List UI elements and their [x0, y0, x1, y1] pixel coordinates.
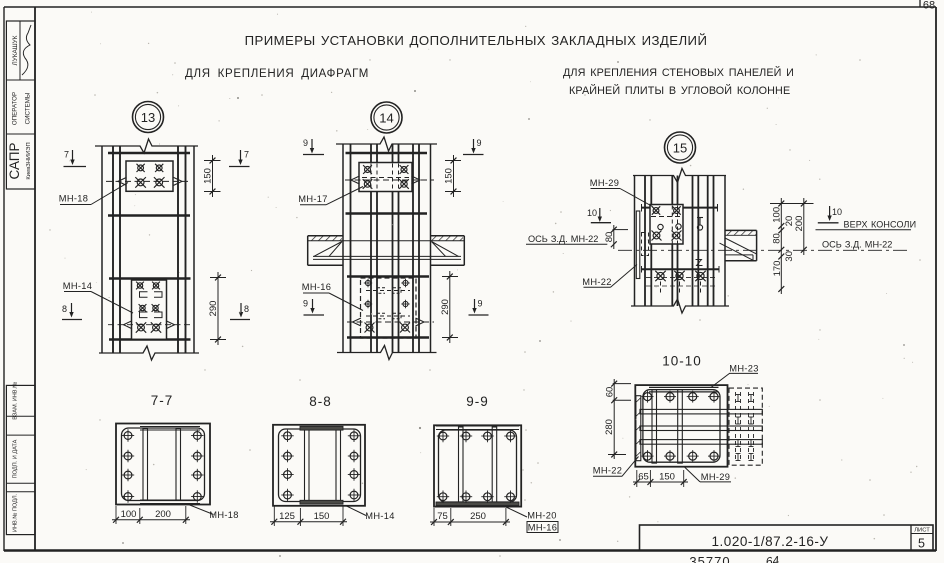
- svg-text:МН-22: МН-22: [582, 277, 611, 287]
- svg-text:290: 290: [208, 301, 219, 317]
- svg-text:200: 200: [794, 216, 805, 232]
- svg-text:ОСЬ З.Д. МН-22: ОСЬ З.Д. МН-22: [528, 234, 598, 244]
- svg-text:ИНВ.№ ПОДЛ.: ИНВ.№ ПОДЛ.: [13, 493, 19, 532]
- svg-text:7-7: 7-7: [151, 393, 174, 408]
- svg-text:КиевЗНИИЭП: КиевЗНИИЭП: [26, 142, 32, 179]
- svg-text:ДЛЯ КРЕПЛЕНИЯ ДИАФРАГМ: ДЛЯ КРЕПЛЕНИЯ ДИАФРАГМ: [185, 68, 369, 80]
- svg-text:МН-22: МН-22: [593, 466, 622, 476]
- svg-text:МН-29: МН-29: [590, 178, 619, 188]
- svg-text:30: 30: [784, 251, 795, 262]
- svg-text:68: 68: [923, 0, 935, 12]
- svg-text:МН-23: МН-23: [729, 363, 758, 373]
- svg-text:80: 80: [604, 232, 615, 243]
- svg-text:35770: 35770: [689, 554, 730, 563]
- svg-text:8: 8: [62, 304, 67, 314]
- svg-text:ПРИМЕРЫ УСТАНОВКИ ДОПОЛНИТЕЛ: ПРИМЕРЫ УСТАНОВКИ ДОПОЛНИТЕЛЬНЫХ ЗАКЛАДН…: [245, 33, 708, 48]
- svg-text:ВЗАМ. ИНВ.№: ВЗАМ. ИНВ.№: [13, 382, 19, 420]
- svg-text:280: 280: [604, 419, 615, 435]
- svg-text:15: 15: [673, 141, 687, 156]
- svg-text:65: 65: [638, 471, 649, 482]
- svg-text:МН-18: МН-18: [209, 510, 238, 520]
- svg-text:МН-14: МН-14: [365, 511, 394, 521]
- svg-text:60: 60: [604, 387, 615, 398]
- svg-text:9: 9: [303, 138, 308, 148]
- svg-text:МН-16: МН-16: [528, 522, 557, 532]
- svg-text:5: 5: [918, 537, 925, 551]
- svg-text:14: 14: [379, 111, 393, 126]
- svg-text:7: 7: [64, 150, 69, 160]
- svg-text:1.020-1/87.2-16-У: 1.020-1/87.2-16-У: [712, 534, 829, 549]
- svg-text:100: 100: [772, 207, 783, 223]
- svg-text:80: 80: [772, 233, 783, 244]
- svg-text:10-10: 10-10: [662, 354, 702, 369]
- svg-text:САПР: САПР: [7, 142, 22, 179]
- svg-text:8: 8: [244, 304, 249, 314]
- svg-text:МН-29: МН-29: [701, 472, 730, 482]
- svg-text:170: 170: [772, 261, 783, 277]
- svg-text:250: 250: [470, 511, 486, 522]
- svg-text:МН-17: МН-17: [298, 194, 327, 204]
- svg-text:13: 13: [141, 110, 155, 125]
- svg-text:9: 9: [303, 299, 308, 309]
- svg-text:9: 9: [477, 299, 482, 309]
- svg-text:9: 9: [476, 138, 481, 148]
- svg-text:150: 150: [203, 168, 214, 184]
- svg-text:ЛУКАШУК: ЛУКАШУК: [12, 35, 19, 65]
- svg-text:75: 75: [437, 511, 448, 522]
- svg-text:8-8: 8-8: [309, 394, 332, 409]
- svg-text:ДЛЯ КРЕПЛЕНИЯ СТЕНОВЫХ ПАНЕЛЕЙ: ДЛЯ КРЕПЛЕНИЯ СТЕНОВЫХ ПАНЕЛЕЙ И: [563, 66, 794, 79]
- svg-text:ПОДП. И ДАТА: ПОДП. И ДАТА: [13, 439, 19, 478]
- svg-text:МН-20: МН-20: [527, 511, 556, 521]
- svg-text:ОСЬ З.Д. МН-22: ОСЬ З.Д. МН-22: [822, 240, 892, 250]
- svg-text:64: 64: [765, 553, 780, 563]
- svg-text:7: 7: [244, 150, 249, 160]
- svg-text:125: 125: [279, 511, 295, 522]
- svg-text:150: 150: [314, 511, 330, 522]
- svg-text:СИСТЕМЫ: СИСТЕМЫ: [25, 93, 32, 125]
- svg-text:150: 150: [444, 168, 455, 184]
- svg-text:9-9: 9-9: [466, 394, 489, 409]
- svg-text:100: 100: [121, 509, 137, 520]
- svg-text:МН-14: МН-14: [63, 281, 92, 291]
- svg-text:290: 290: [440, 299, 451, 315]
- svg-text:ЛИСТ: ЛИСТ: [914, 528, 930, 534]
- svg-text:10: 10: [587, 208, 597, 218]
- svg-text:150: 150: [659, 471, 675, 482]
- svg-text:200: 200: [155, 509, 171, 520]
- svg-text:КРАЙНЕЙ ПЛИТЫ В УГЛОВОЙ КОЛОНН: КРАЙНЕЙ ПЛИТЫ В УГЛОВОЙ КОЛОННЕ: [569, 84, 790, 97]
- svg-text:10: 10: [832, 207, 842, 217]
- svg-text:ВЕРХ КОНСОЛИ: ВЕРХ КОНСОЛИ: [844, 219, 917, 229]
- svg-text:МН-16: МН-16: [302, 282, 331, 292]
- svg-text:ОПЕРАТОР: ОПЕРАТОР: [12, 92, 19, 125]
- svg-text:МН-18: МН-18: [59, 194, 88, 204]
